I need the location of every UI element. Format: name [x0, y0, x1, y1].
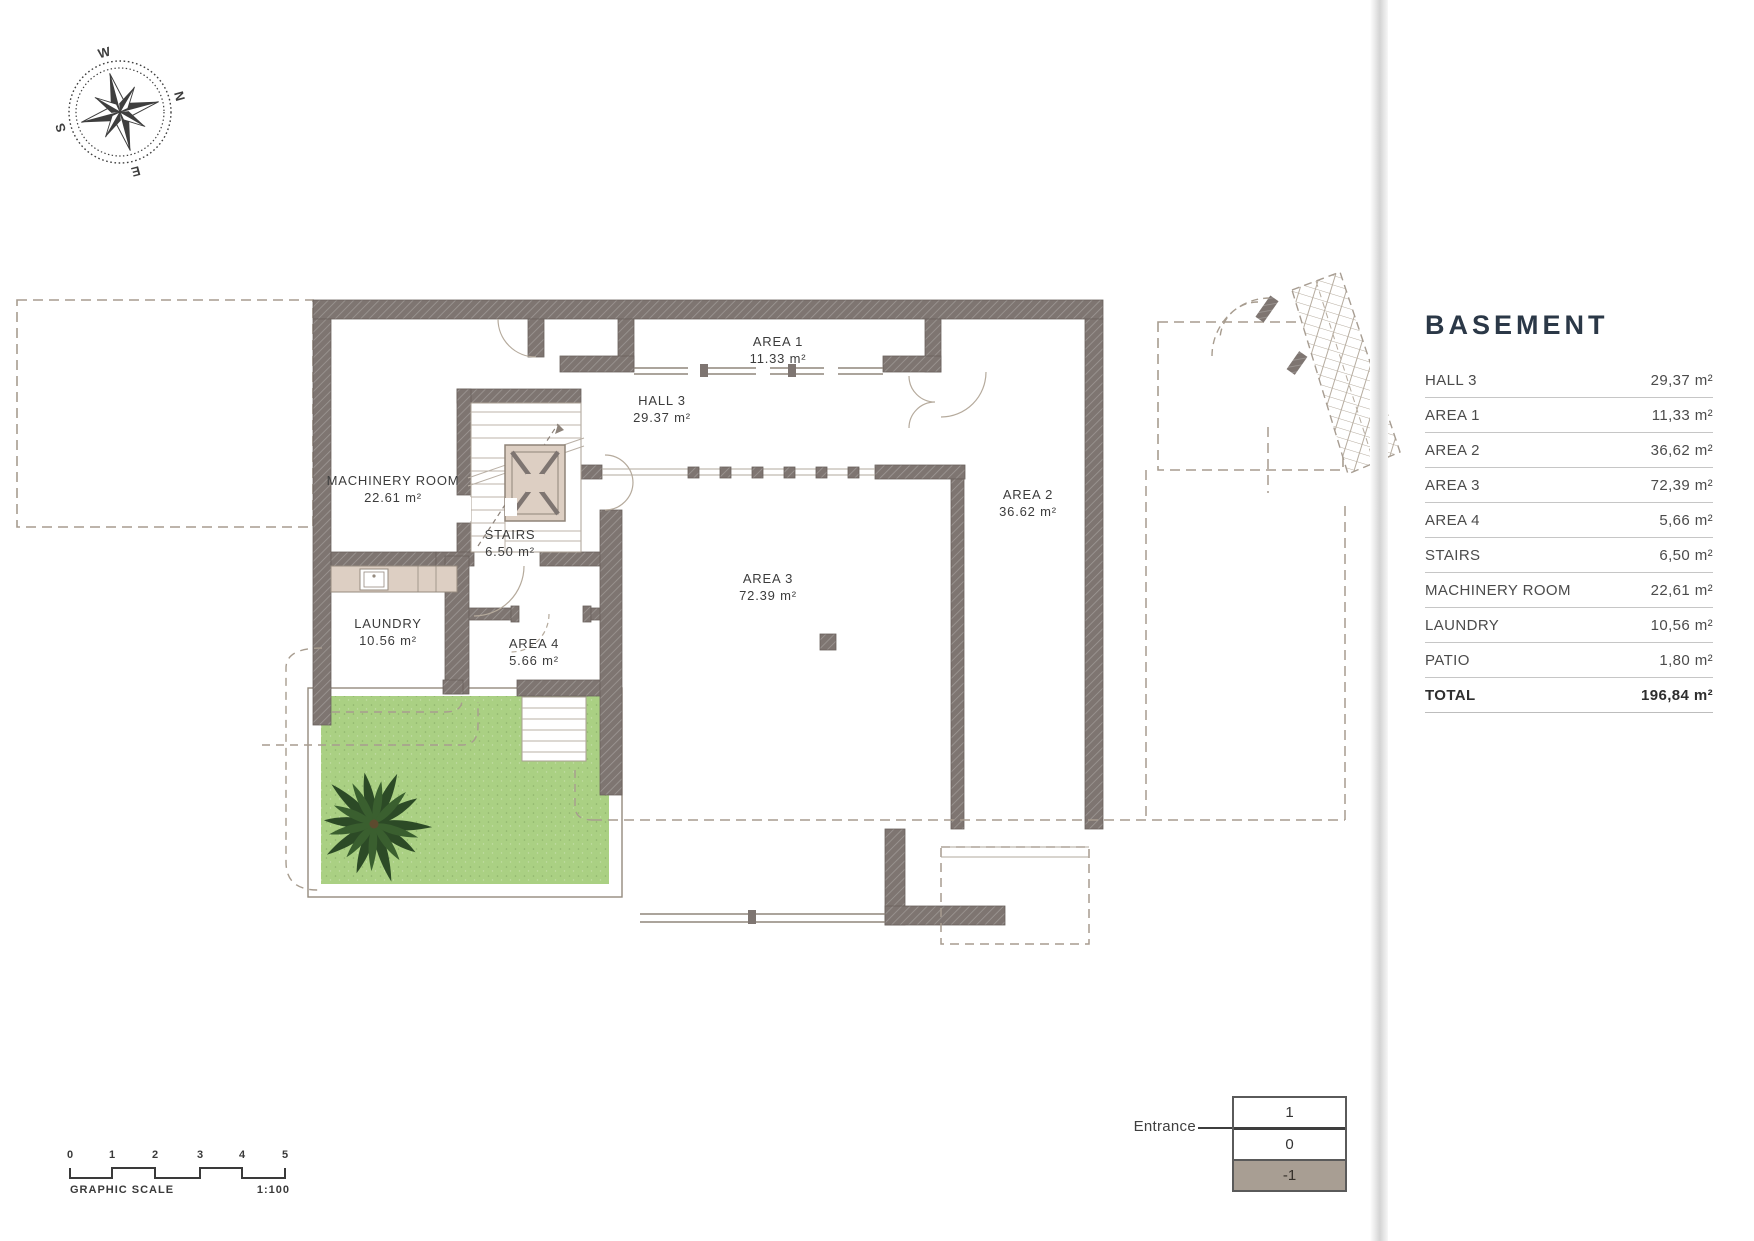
compass-s: S — [52, 121, 69, 134]
compass-n: N — [171, 90, 188, 103]
scale-tick: 4 — [232, 1149, 252, 1161]
legend-panel: BASEMENT HALL 3 29,37 m² AREA 1 11,33 m²… — [1425, 310, 1713, 713]
legend-row-label: AREA 1 — [1425, 407, 1480, 424]
legend-row-label: AREA 3 — [1425, 477, 1480, 494]
legend-row: MACHINERY ROOM 22,61 m² — [1425, 573, 1713, 608]
legend-total-label: TOTAL — [1425, 687, 1476, 704]
legend-row-label: PATIO — [1425, 652, 1470, 669]
legend-row: AREA 4 5,66 m² — [1425, 503, 1713, 538]
legend-row-value: 22,61 m² — [1651, 582, 1713, 599]
legend-total-value: 196,84 m² — [1641, 687, 1713, 704]
entrance-label: Entrance — [1108, 1118, 1196, 1135]
room-label-hall3: HALL 3 29.37 m² — [567, 392, 757, 426]
legend-table: HALL 3 29,37 m² AREA 1 11,33 m² AREA 2 3… — [1425, 363, 1713, 713]
elevator — [505, 445, 565, 521]
page-fold-shadow — [1370, 0, 1388, 1241]
room-label-laundry: LAUNDRY 10.56 m² — [293, 615, 483, 649]
scale-ratio: 1:100 — [230, 1184, 290, 1196]
window-line-area3 — [640, 910, 885, 924]
legend-row: AREA 1 11,33 m² — [1425, 398, 1713, 433]
porch-outline — [941, 847, 1089, 944]
legend-row-value: 5,66 m² — [1659, 512, 1713, 529]
room-label-area3: AREA 3 72.39 m² — [673, 570, 863, 604]
entrance-leader-line — [1198, 1127, 1232, 1129]
legend-row-label: AREA 4 — [1425, 512, 1480, 529]
level-option-minus1-current: -1 — [1234, 1161, 1345, 1190]
terrace-outline — [17, 300, 313, 527]
room-label-area1: AREA 1 11.33 m² — [683, 333, 873, 367]
room-label-area2: AREA 2 36.62 m² — [933, 486, 1123, 520]
colonnade — [602, 467, 875, 478]
scale-bar-label: GRAPHIC SCALE — [70, 1184, 174, 1196]
legend-row: HALL 3 29,37 m² — [1425, 363, 1713, 398]
column — [820, 634, 836, 650]
compass-w: W — [96, 43, 112, 61]
legend-row-value: 29,37 m² — [1651, 372, 1713, 389]
legend-row-label: LAUNDRY — [1425, 617, 1499, 634]
level-option-1: 1 — [1234, 1098, 1345, 1130]
legend-row-label: MACHINERY ROOM — [1425, 582, 1571, 599]
sink — [360, 569, 388, 590]
legend-row-label: STAIRS — [1425, 547, 1480, 564]
compass-e: E — [129, 163, 142, 180]
legend-row: AREA 3 72,39 m² — [1425, 468, 1713, 503]
legend-row: LAUNDRY 10,56 m² — [1425, 608, 1713, 643]
floorplan-page: N E S W — [0, 0, 1754, 1241]
laundry-counter — [331, 566, 457, 592]
scale-tick: 1 — [102, 1149, 122, 1161]
legend-row-label: AREA 2 — [1425, 442, 1480, 459]
room-label-machinery: MACHINERY ROOM 22.61 m² — [298, 472, 488, 506]
legend-row-value: 11,33 m² — [1652, 407, 1713, 424]
compass-rose-icon: N E S W — [52, 43, 188, 180]
legend-row-value: 1,80 m² — [1659, 652, 1713, 669]
scale-tick: 2 — [145, 1149, 165, 1161]
page-title: BASEMENT — [1425, 310, 1713, 341]
room-label-stairs: STAIRS 6.50 m² — [415, 526, 605, 560]
legend-row: STAIRS 6,50 m² — [1425, 538, 1713, 573]
scale-tick: 0 — [60, 1149, 80, 1161]
level-option-0: 0 — [1234, 1130, 1345, 1161]
scale-tick: 3 — [190, 1149, 210, 1161]
legend-row-value: 72,39 m² — [1651, 477, 1713, 494]
legend-row-value: 6,50 m² — [1659, 547, 1713, 564]
exterior-staircase — [522, 697, 586, 761]
legend-total-row: TOTAL 196,84 m² — [1425, 678, 1713, 713]
scale-bar — [70, 1168, 285, 1178]
legend-row-value: 10,56 m² — [1651, 617, 1713, 634]
legend-row-label: HALL 3 — [1425, 372, 1477, 389]
level-indicator: 1 0 -1 — [1232, 1096, 1347, 1192]
scale-tick: 5 — [275, 1149, 295, 1161]
legend-row: PATIO 1,80 m² — [1425, 643, 1713, 678]
legend-row-value: 36,62 m² — [1651, 442, 1713, 459]
legend-row: AREA 2 36,62 m² — [1425, 433, 1713, 468]
